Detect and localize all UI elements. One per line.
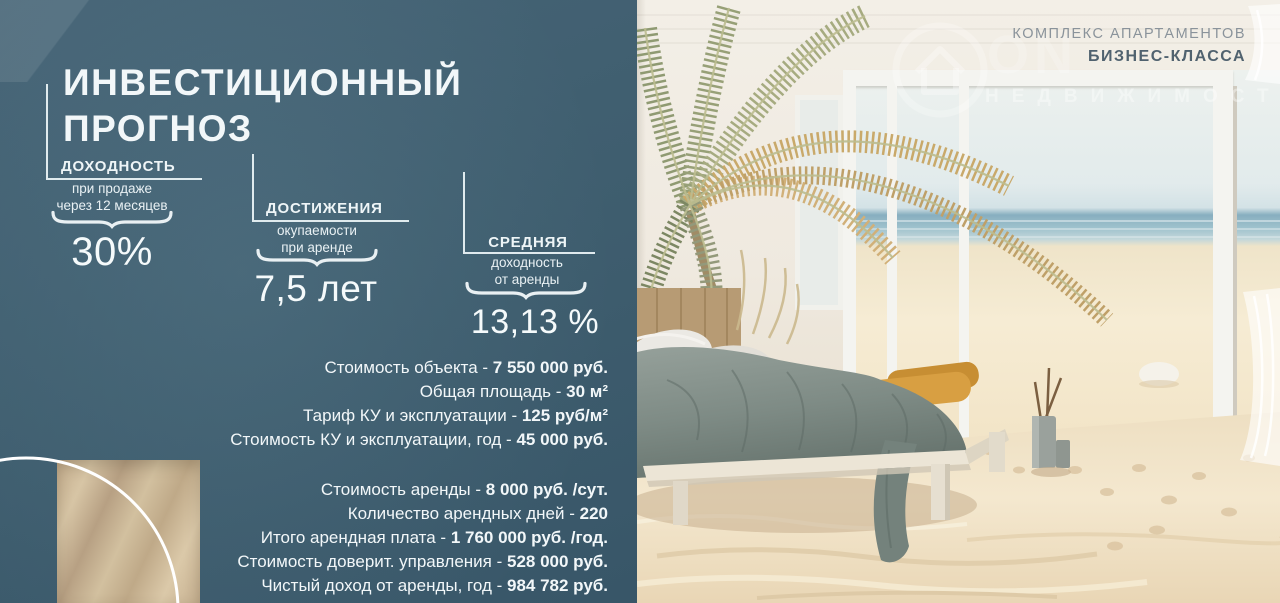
property-stats-list: Стоимость объекта - 7 550 000 руб. Общая… — [150, 356, 608, 452]
stat-line: Общая площадь - 30 м² — [150, 380, 608, 404]
metric2-value: 7,5 лет — [235, 268, 397, 310]
metric1-underbrace — [50, 210, 174, 228]
stat-label: Стоимость КУ и эксплуатации, год - — [230, 430, 516, 449]
metric2-underbrace — [255, 248, 379, 266]
bed-leg — [989, 432, 1005, 472]
vase-with-sticks — [1031, 368, 1071, 477]
metric3-header: СРЕДНЯЯ — [463, 234, 593, 251]
photo-captions: КОМПЛЕКС АПАРТАМЕНТОВ БИЗНЕС-КЛАССА — [1012, 26, 1246, 66]
stat-label: Стоимость доверит. управления - — [237, 552, 507, 571]
metric3-underbrace — [461, 281, 591, 299]
curtains — [1240, 4, 1280, 466]
watermark-word-text: НЕДВИЖИМОСТЬ — [985, 86, 1280, 108]
stat-value: 984 782 руб. — [507, 576, 608, 595]
metric1-header: ДОХОДНОСТЬ — [47, 158, 200, 175]
stat-label: Тариф КУ и эксплуатации - — [303, 406, 522, 425]
left-panel: ИНВЕСТИЦИОННЫЙПРОГНОЗ ДОХОДНОСТЬ при про… — [0, 0, 637, 603]
stat-line: Тариф КУ и эксплуатации - 125 руб/м² — [150, 404, 608, 428]
dry-grass — [737, 250, 799, 344]
stat-label: Стоимость аренды - — [321, 480, 486, 499]
stat-value: 125 руб/м² — [522, 406, 608, 425]
metric3-value: 13,13 % — [455, 303, 615, 342]
caption-class: БИЗНЕС-КЛАССА — [1012, 48, 1246, 66]
beach-bedroom-photo: ON НЕДВИЖИМОСТЬ КОМПЛЕКС АПАРТАМЕНТОВ БИ… — [637, 0, 1280, 603]
stat-label: Общая площадь - — [420, 382, 566, 401]
circle-arc-decoration — [0, 440, 220, 603]
stat-value: 528 000 руб. — [507, 552, 608, 571]
stat-label: Количество арендных дней - — [348, 504, 580, 523]
bed — [637, 250, 1009, 562]
stat-line: Стоимость объекта - 7 550 000 руб. — [150, 356, 608, 380]
stat-label: Чистый доход от аренды, год - — [261, 576, 507, 595]
metric2-header: ДОСТИЖЕНИЯ — [253, 200, 407, 217]
stat-value: 220 — [580, 504, 608, 523]
realty-logo-watermark-icon — [890, 18, 990, 118]
stat-label: Итого арендная плата - — [261, 528, 451, 547]
stat-value: 1 760 000 руб. /год. — [451, 528, 608, 547]
stat-value: 45 000 руб. — [516, 430, 608, 449]
caption-complex: КОМПЛЕКС АПАРТАМЕНТОВ — [1012, 26, 1246, 42]
stat-value: 30 м² — [566, 382, 608, 401]
metric1-value: 30% — [36, 230, 188, 275]
stat-label: Стоимость объекта - — [324, 358, 492, 377]
stat-value: 7 550 000 руб. — [493, 358, 608, 377]
investment-slide: ИНВЕСТИЦИОННЫЙПРОГНОЗ ДОХОДНОСТЬ при про… — [0, 0, 1280, 603]
bed-leg — [673, 481, 688, 525]
stat-value: 8 000 руб. /сут. — [486, 480, 608, 499]
